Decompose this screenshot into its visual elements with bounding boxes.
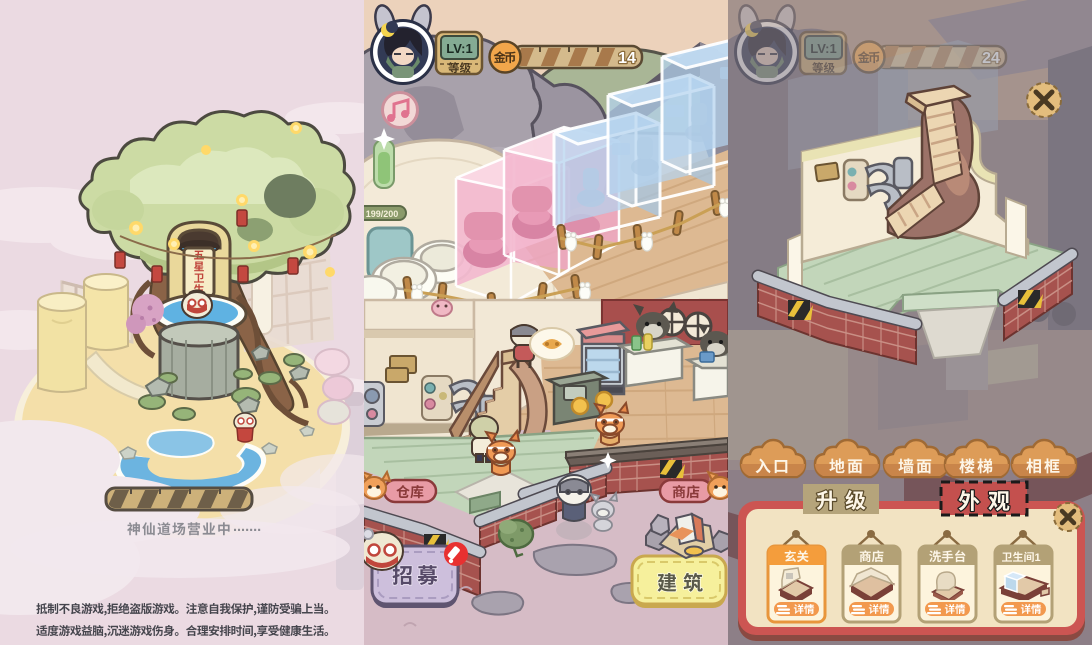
svg-text:LV:1: LV:1 — [446, 41, 473, 56]
svg-text:LV:1: LV:1 — [810, 41, 837, 56]
svg-text:.......: ....... — [233, 519, 261, 535]
svg-text:199/200: 199/200 — [366, 209, 399, 219]
svg-text:24: 24 — [982, 50, 1000, 67]
svg-text:1: 1 — [1035, 552, 1041, 564]
svg-text:14: 14 — [618, 50, 636, 67]
